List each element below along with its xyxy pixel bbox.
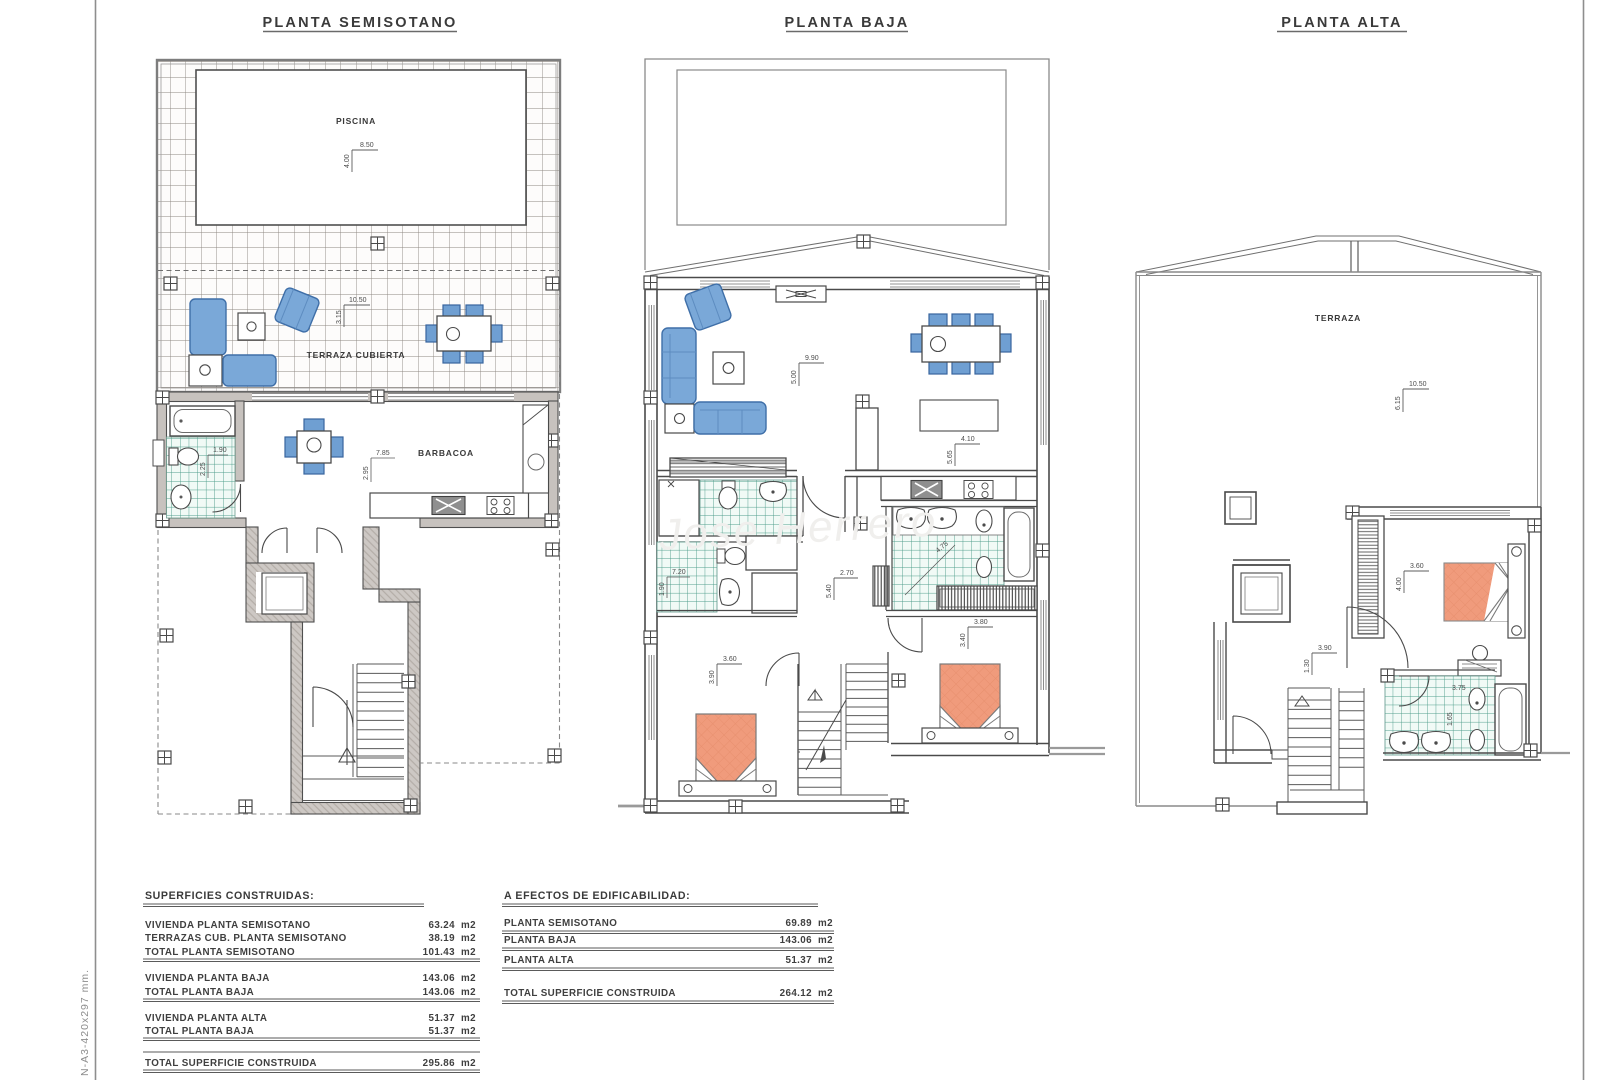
svg-text:8.50: 8.50 <box>360 142 374 149</box>
svg-text:3.90: 3.90 <box>709 670 716 684</box>
svg-text:TERRAZA CUBIERTA: TERRAZA CUBIERTA <box>307 350 406 360</box>
svg-text:143.06: 143.06 <box>423 973 456 984</box>
svg-text:2.25: 2.25 <box>200 462 207 476</box>
svg-text:N-A3-420x297 mm.: N-A3-420x297 mm. <box>79 969 91 1076</box>
svg-text:3.15: 3.15 <box>336 310 343 324</box>
svg-text:1.90: 1.90 <box>659 582 666 596</box>
svg-text:m2: m2 <box>461 947 476 958</box>
svg-text:m2: m2 <box>461 973 476 984</box>
svg-text:69.89: 69.89 <box>785 918 812 929</box>
svg-text:101.43: 101.43 <box>423 947 456 958</box>
svg-text:TOTAL PLANTA SEMISOTANO: TOTAL PLANTA SEMISOTANO <box>145 947 295 958</box>
svg-text:TOTAL PLANTA BAJA: TOTAL PLANTA BAJA <box>145 987 254 998</box>
svg-text:143.06: 143.06 <box>780 935 813 946</box>
svg-text:m2: m2 <box>461 987 476 998</box>
svg-text:4.00: 4.00 <box>344 154 351 168</box>
svg-text:9.90: 9.90 <box>805 355 819 362</box>
svg-text:3.75: 3.75 <box>1452 685 1466 692</box>
svg-text:4.00: 4.00 <box>1396 577 1403 591</box>
svg-text:m2: m2 <box>461 920 476 931</box>
svg-text:4.10: 4.10 <box>961 436 975 443</box>
svg-text:295.86: 295.86 <box>423 1058 456 1069</box>
svg-text:m2: m2 <box>818 918 833 929</box>
svg-text:51.37: 51.37 <box>428 1026 455 1037</box>
svg-text:1.90: 1.90 <box>213 447 227 454</box>
svg-text:10.50: 10.50 <box>1409 381 1427 388</box>
svg-text:5.00: 5.00 <box>791 370 798 384</box>
svg-text:m2: m2 <box>461 1058 476 1069</box>
svg-text:38.19: 38.19 <box>428 933 455 944</box>
svg-text:5.65: 5.65 <box>947 450 954 464</box>
svg-text:TERRAZA: TERRAZA <box>1315 313 1361 323</box>
svg-text:VIVIENDA PLANTA SEMISOTANO: VIVIENDA PLANTA SEMISOTANO <box>145 920 311 931</box>
svg-text:264.12: 264.12 <box>780 988 813 999</box>
svg-text:VIVIENDA PLANTA BAJA: VIVIENDA PLANTA BAJA <box>145 973 270 984</box>
svg-text:TOTAL SUPERFICIE CONSTRUIDA: TOTAL SUPERFICIE CONSTRUIDA <box>145 1058 317 1069</box>
svg-text:51.37: 51.37 <box>428 1013 455 1024</box>
svg-text:1.30: 1.30 <box>1304 659 1311 673</box>
svg-text:6.15: 6.15 <box>1395 396 1402 410</box>
svg-text:PLANTA ALTA: PLANTA ALTA <box>504 955 574 966</box>
svg-text:3.40: 3.40 <box>960 633 967 647</box>
svg-text:3.60: 3.60 <box>1410 563 1424 570</box>
svg-text:2.70: 2.70 <box>840 570 854 577</box>
svg-text:m2: m2 <box>818 988 833 999</box>
svg-text:TERRAZAS CUB. PLANTA SEMISOTA: TERRAZAS CUB. PLANTA SEMISOTANO <box>145 933 347 944</box>
svg-text:10.50: 10.50 <box>349 297 367 304</box>
svg-text:3.90: 3.90 <box>1318 645 1332 652</box>
svg-text:m2: m2 <box>461 1026 476 1037</box>
svg-text:1.65: 1.65 <box>1447 712 1454 726</box>
svg-text:SUPERFICIES CONSTRUIDAS:: SUPERFICIES CONSTRUIDAS: <box>145 890 314 902</box>
svg-text:VIVIENDA PLANTA ALTA: VIVIENDA PLANTA ALTA <box>145 1013 267 1024</box>
svg-text:TOTAL PLANTA BAJA: TOTAL PLANTA BAJA <box>145 1026 254 1037</box>
svg-text:m2: m2 <box>818 955 833 966</box>
svg-text:3.80: 3.80 <box>974 619 988 626</box>
svg-text:3.60: 3.60 <box>723 656 737 663</box>
svg-text:TOTAL SUPERFICIE CONSTRUIDA: TOTAL SUPERFICIE CONSTRUIDA <box>504 988 676 999</box>
svg-text:63.24: 63.24 <box>428 920 455 931</box>
svg-text:PLANTA SEMISOTANO: PLANTA SEMISOTANO <box>504 918 617 929</box>
svg-text:PLANTA SEMISOTANO: PLANTA SEMISOTANO <box>262 15 457 31</box>
svg-text:A EFECTOS DE EDIFICABILIDAD:: A EFECTOS DE EDIFICABILIDAD: <box>504 890 690 902</box>
svg-text:m2: m2 <box>461 1013 476 1024</box>
svg-text:2.95: 2.95 <box>363 466 370 480</box>
svg-text:BARBACOA: BARBACOA <box>418 448 474 458</box>
svg-text:PLANTA BAJA: PLANTA BAJA <box>504 935 576 946</box>
svg-text:m2: m2 <box>818 935 833 946</box>
svg-text:PLANTA ALTA: PLANTA ALTA <box>1281 15 1402 31</box>
svg-text:143.06: 143.06 <box>423 987 456 998</box>
svg-text:51.37: 51.37 <box>785 955 812 966</box>
svg-text:7.20: 7.20 <box>672 569 686 576</box>
svg-text:5.40: 5.40 <box>826 584 833 598</box>
svg-text:7.85: 7.85 <box>376 450 390 457</box>
svg-text:m2: m2 <box>461 933 476 944</box>
svg-text:PLANTA BAJA: PLANTA BAJA <box>785 15 910 31</box>
svg-text:PISCINA: PISCINA <box>336 116 376 126</box>
